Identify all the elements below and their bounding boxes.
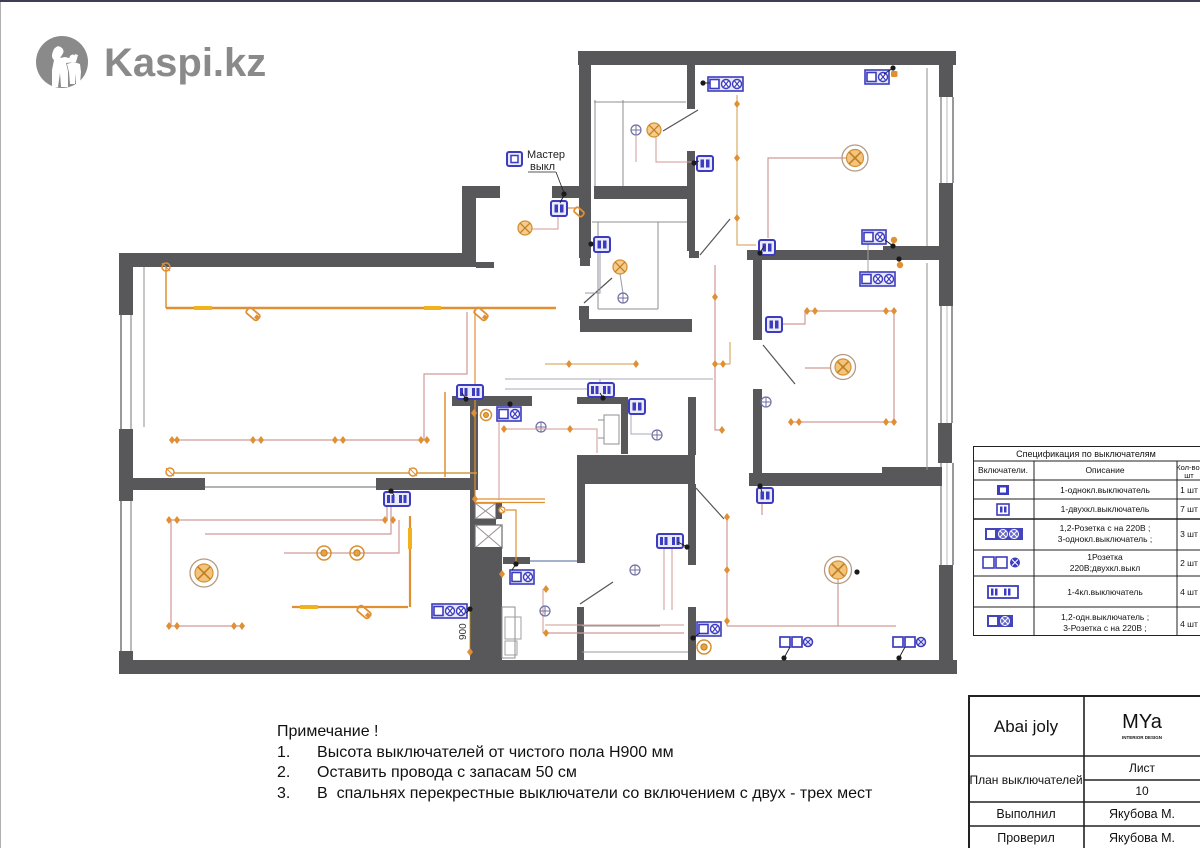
svg-text:Мастер: Мастер bbox=[527, 149, 565, 161]
svg-text:Выполнил: Выполнил bbox=[996, 807, 1055, 821]
svg-text:Проверил: Проверил bbox=[997, 831, 1055, 845]
svg-text:3-Розетка с на 220В ;: 3-Розетка с на 220В ; bbox=[1063, 623, 1147, 633]
svg-text:1-однокл.выключатель: 1-однокл.выключатель bbox=[1060, 485, 1150, 495]
svg-text:1,2-одн.выключатель ;: 1,2-одн.выключатель ; bbox=[1061, 612, 1149, 622]
svg-text:4 шт: 4 шт bbox=[1180, 619, 1198, 629]
svg-text:1-двухкл.выключатель: 1-двухкл.выключатель bbox=[1061, 504, 1150, 514]
svg-text:Описание: Описание bbox=[1085, 465, 1124, 475]
svg-text:Включатели.: Включатели. bbox=[978, 465, 1028, 475]
svg-text:1 шт: 1 шт bbox=[1180, 485, 1198, 495]
svg-text:4 шт: 4 шт bbox=[1180, 587, 1198, 597]
svg-text:Спецификация по выключателям: Спецификация по выключателям bbox=[1016, 449, 1156, 459]
svg-text:Якубова М.: Якубова М. bbox=[1109, 807, 1175, 821]
svg-text:2 шт: 2 шт bbox=[1180, 558, 1198, 568]
svg-text:900: 900 bbox=[458, 623, 469, 640]
svg-text:1-4кл.выключатель: 1-4кл.выключатель bbox=[1067, 587, 1143, 597]
svg-text:7 шт: 7 шт bbox=[1180, 504, 1198, 514]
svg-text:выкл: выкл bbox=[530, 161, 555, 173]
svg-text:Якубова М.: Якубова М. bbox=[1109, 831, 1175, 845]
svg-text:3 шт: 3 шт bbox=[1180, 529, 1198, 539]
svg-text:1,2-Розетка с на 220В ;: 1,2-Розетка с на 220В ; bbox=[1060, 523, 1151, 533]
svg-text:220В;двухкл.выкл: 220В;двухкл.выкл bbox=[1070, 563, 1141, 573]
svg-text:1Розетка: 1Розетка bbox=[1087, 552, 1123, 562]
svg-text:шт: шт bbox=[1184, 471, 1194, 480]
svg-text:3-однокл.выключатель ;: 3-однокл.выключатель ; bbox=[1058, 534, 1153, 544]
